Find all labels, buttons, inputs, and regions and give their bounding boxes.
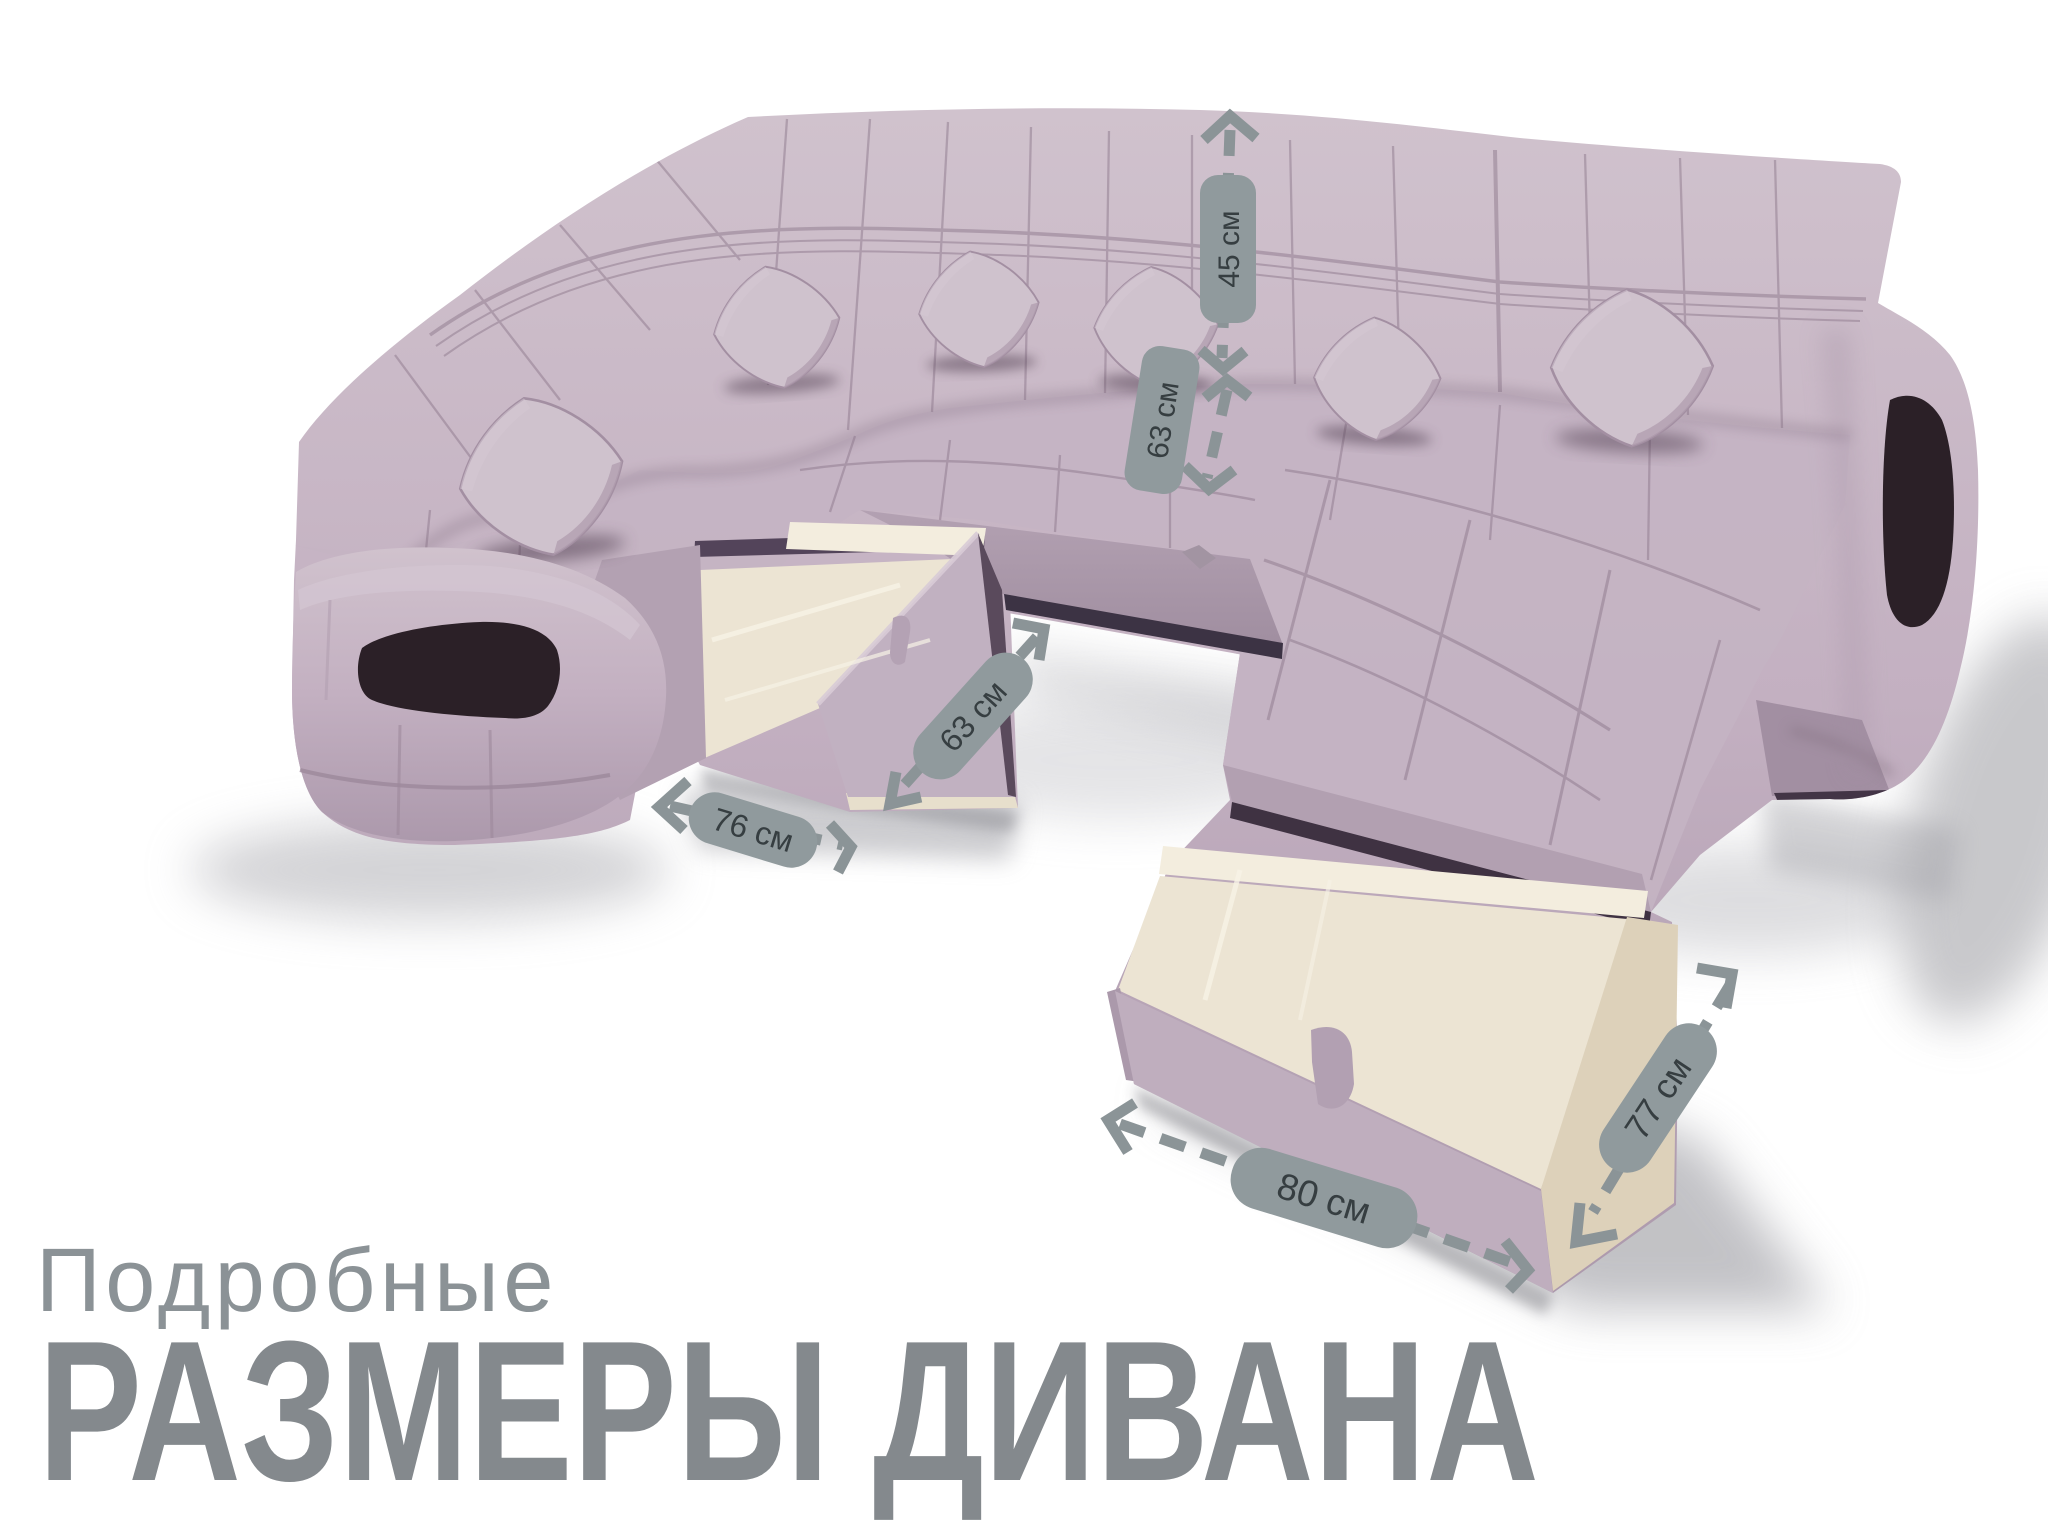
svg-text:45 см: 45 см [1213,210,1246,287]
